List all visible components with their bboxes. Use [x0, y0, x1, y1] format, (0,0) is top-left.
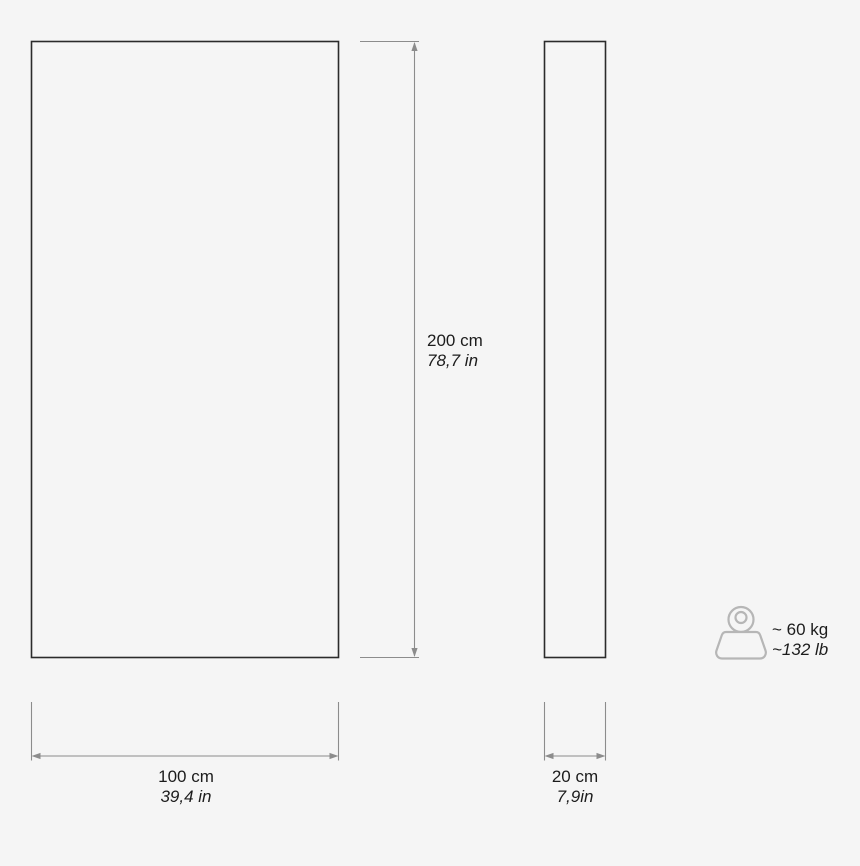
- height-arrow-down: [411, 648, 417, 657]
- height-metric-value: 200 cm: [427, 331, 483, 351]
- weight-metric-value: ~ 60 kg: [772, 620, 828, 640]
- weight-imperial-value: ~132 lb: [772, 640, 828, 660]
- side-depth-arrow-right: [597, 753, 606, 759]
- weight-icon: [716, 607, 766, 659]
- side-depth-dimension-label: 20 cm 7,9in: [515, 767, 635, 806]
- front-width-dimension-line: [32, 702, 339, 761]
- side-view-outline: [545, 42, 606, 658]
- product-dimension-diagram: 200 cm 78,7 in 100 cm 39,4 in 20 cm 7,9i…: [0, 0, 860, 866]
- height-dimension-label: 200 cm 78,7 in: [427, 331, 483, 370]
- height-dimension-line: [360, 42, 419, 658]
- side-depth-dimension-line: [545, 702, 606, 761]
- weight-icon-ring: [729, 607, 754, 632]
- height-arrow-up: [411, 42, 417, 51]
- front-width-arrow-right: [330, 753, 339, 759]
- side-depth-metric-value: 20 cm: [515, 767, 635, 787]
- weight-label: ~ 60 kg ~132 lb: [772, 620, 828, 659]
- weight-icon-ring-hole: [736, 612, 747, 623]
- height-imperial-value: 78,7 in: [427, 351, 483, 371]
- front-width-arrow-left: [32, 753, 41, 759]
- front-view-outline: [32, 42, 339, 658]
- weight-icon-body: [716, 632, 766, 659]
- front-width-dimension-label: 100 cm 39,4 in: [110, 767, 262, 806]
- front-width-imperial-value: 39,4 in: [110, 787, 262, 807]
- front-width-metric-value: 100 cm: [110, 767, 262, 787]
- side-depth-arrow-left: [545, 753, 554, 759]
- diagram-canvas: [0, 0, 860, 866]
- side-depth-imperial-value: 7,9in: [515, 787, 635, 807]
